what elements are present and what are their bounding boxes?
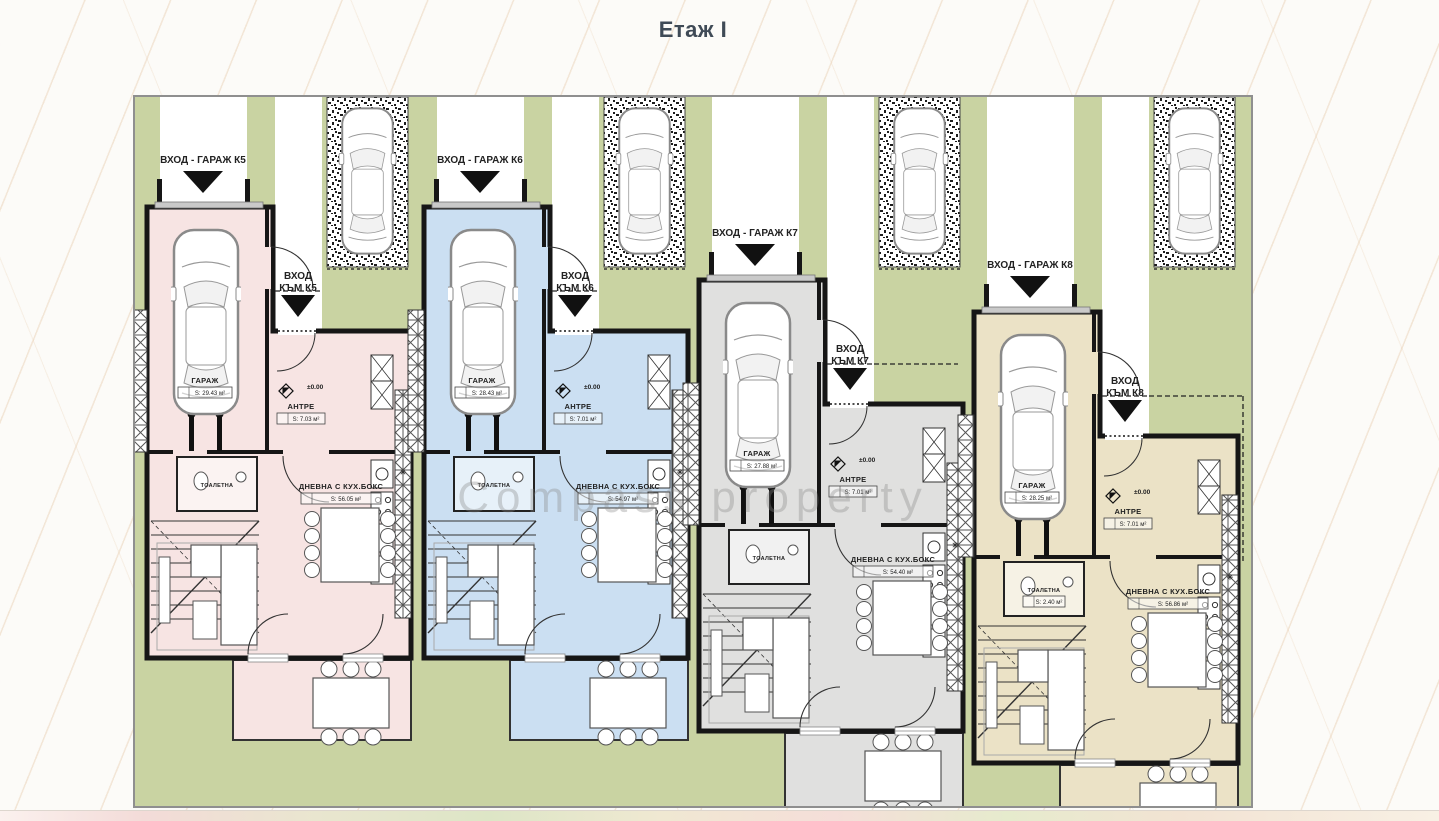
room-name: ГАРАЖ xyxy=(1018,481,1045,490)
entrance-label-line2: КЪМ К8 xyxy=(1106,388,1144,399)
room-area: S: 28.43 м² xyxy=(472,391,502,397)
room-name: ГАРАЖ xyxy=(468,376,495,385)
garage-entrance-label: ВХОД - ГАРАЖ К6 xyxy=(437,155,523,166)
elevation-label: ±0.00 xyxy=(307,384,324,391)
room-area: S: 7.01 м² xyxy=(570,417,597,423)
vent-symbol: ✳ xyxy=(1227,573,1234,582)
entrance-label-line2: КЪМ К7 xyxy=(831,356,869,367)
room-area: S: 56.05 м² xyxy=(331,497,361,503)
room-name: ДНЕВНА С КУХ.БОКС xyxy=(1126,587,1211,596)
room-area: S: 7.03 м² xyxy=(293,417,320,423)
entrance-label-line2: КЪМ К6 xyxy=(556,283,594,294)
room-area: S: 54.40 м² xyxy=(883,570,913,576)
garage-entrance-label: ВХОД - ГАРАЖ К5 xyxy=(160,155,246,166)
room-name: ДНЕВНА С КУХ.БОКС xyxy=(576,482,661,491)
room-area: S: 7.01 м² xyxy=(845,490,872,496)
page: { "page": { "title": "Етаж I", "watermar… xyxy=(0,0,1439,820)
entrance-label-line1: ВХОД xyxy=(836,344,864,355)
entrance-label-line1: ВХОД xyxy=(561,271,589,282)
room-name: АНТРЕ xyxy=(840,475,867,484)
floor-plan-image[interactable]: ✳ВХОДКЪМ К5ВХОД - ГАРАЖ К5±0.00ГАРАЖS: 2… xyxy=(133,95,1253,808)
room-name: ТОАЛЕТНА xyxy=(753,556,786,562)
room-name: ТОАЛЕТНА xyxy=(201,483,234,489)
entrance-label-line1: ВХОД xyxy=(284,271,312,282)
room-name: ДНЕВНА С КУХ.БОКС xyxy=(851,555,936,564)
page-title: Етаж I xyxy=(133,17,1253,43)
garage-entrance-label: ВХОД - ГАРАЖ К8 xyxy=(987,260,1073,271)
elevation-label: ±0.00 xyxy=(584,384,601,391)
room-name: ТОАЛЕТНА xyxy=(1028,588,1061,594)
room-name: ГАРАЖ xyxy=(743,449,770,458)
room-name: ТОАЛЕТНА xyxy=(478,483,511,489)
entrance-label-line1: ВХОД xyxy=(1111,376,1139,387)
room-area: S: 54.97 м² xyxy=(608,497,638,503)
room-area: S: 2.40 м² xyxy=(1036,600,1063,606)
entrance-label-line2: КЪМ К5 xyxy=(279,283,317,294)
room-area: S: 7.01 м² xyxy=(1120,522,1147,528)
room-area: S: 27.88 м² xyxy=(747,464,777,470)
room-name: ДНЕВНА С КУХ.БОКС xyxy=(299,482,384,491)
floor-plan-svg: ✳ВХОДКЪМ К5ВХОД - ГАРАЖ К5±0.00ГАРАЖS: 2… xyxy=(133,95,1253,808)
garage-entrance-label: ВХОД - ГАРАЖ К7 xyxy=(712,228,798,239)
elevation-label: ±0.00 xyxy=(859,457,876,464)
room-area: S: 56.86 м² xyxy=(1158,602,1188,608)
room-name: АНТРЕ xyxy=(288,402,315,411)
room-name: АНТРЕ xyxy=(1115,507,1142,516)
room-area: S: 29.43 м² xyxy=(195,391,225,397)
room-area: S: 28.25 м² xyxy=(1022,496,1052,502)
bottom-carousel-strip xyxy=(0,810,1439,821)
elevation-label: ±0.00 xyxy=(1134,489,1151,496)
room-name: АНТРЕ xyxy=(565,402,592,411)
vent-symbol: ✳ xyxy=(400,468,407,477)
room-name: ГАРАЖ xyxy=(191,376,218,385)
